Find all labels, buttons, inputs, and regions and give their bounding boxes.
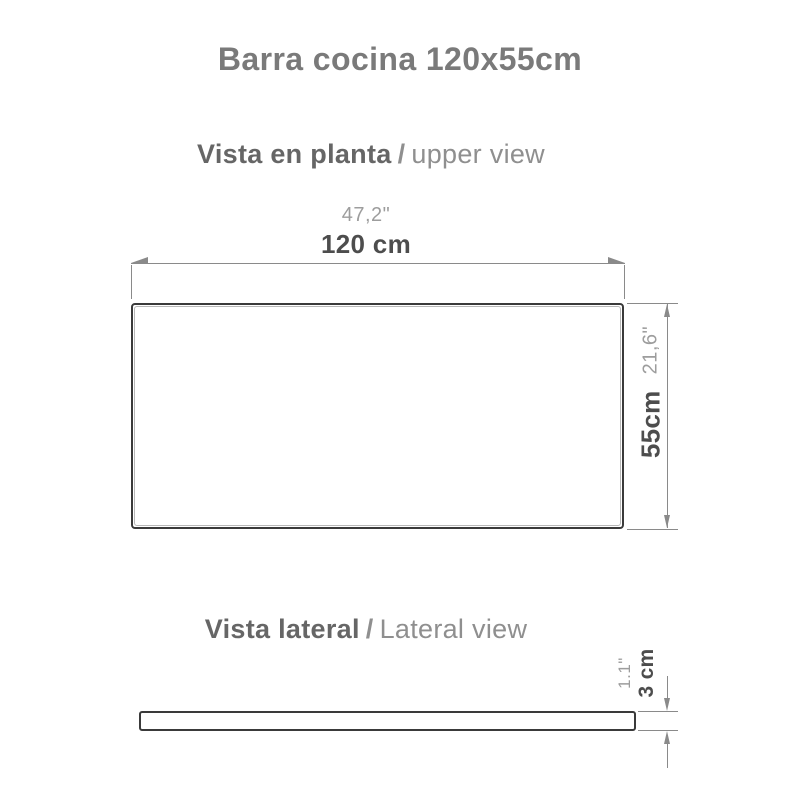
depth-extension-line-top xyxy=(627,303,678,304)
depth-dimension-line xyxy=(667,304,668,528)
depth-dim-labels: 55cm 21,6" xyxy=(636,326,667,458)
countertop-inner-edge xyxy=(134,306,621,526)
countertop-side-rect xyxy=(139,711,636,731)
width-extension-line-right xyxy=(624,265,625,299)
plan-view-heading: Vista en planta/upper view xyxy=(197,139,545,170)
thickness-dim-arrow-up-icon xyxy=(664,731,670,744)
width-dim-arrow-right-icon xyxy=(608,257,625,263)
plan-heading-light: upper view xyxy=(411,139,545,169)
depth-extension-line-bottom xyxy=(627,529,678,530)
lateral-view-heading: Vista lateral/Lateral view xyxy=(205,614,527,645)
thickness-extension-line-top xyxy=(638,711,678,712)
depth-dim-arrow-up-icon xyxy=(664,304,670,317)
thickness-dim-cm-label: 3 cm xyxy=(635,648,659,697)
width-dimension-line xyxy=(131,263,625,264)
depth-dim-cm-label: 55cm xyxy=(636,390,667,458)
thickness-dim-inches-label: 1.1" xyxy=(615,648,635,697)
dimension-diagram: Barra cocina 120x55cm Vista en planta/up… xyxy=(0,0,800,800)
thickness-dim-line-upper xyxy=(667,676,668,698)
width-extension-line-left xyxy=(131,265,132,299)
plan-heading-bold: Vista en planta xyxy=(197,139,392,169)
thickness-dim-arrow-down-icon xyxy=(664,698,670,711)
page-title: Barra cocina 120x55cm xyxy=(218,41,582,78)
lateral-heading-separator: / xyxy=(366,614,374,644)
depth-dim-inches-label: 21,6" xyxy=(640,326,663,375)
width-dim-cm-label: 120 cm xyxy=(321,229,411,260)
width-dim-inches-label: 47,2" xyxy=(342,204,391,227)
depth-dim-arrow-down-icon xyxy=(664,515,670,528)
countertop-plan-rect xyxy=(131,303,624,529)
lateral-heading-bold: Vista lateral xyxy=(205,614,360,644)
plan-heading-separator: / xyxy=(398,139,406,169)
thickness-dim-labels: 1.1" 3 cm xyxy=(615,648,659,697)
lateral-heading-light: Lateral view xyxy=(380,614,528,644)
thickness-dim-line-lower xyxy=(667,744,668,768)
width-dim-arrow-left-icon xyxy=(131,257,148,263)
thickness-extension-line-bottom xyxy=(638,730,678,731)
